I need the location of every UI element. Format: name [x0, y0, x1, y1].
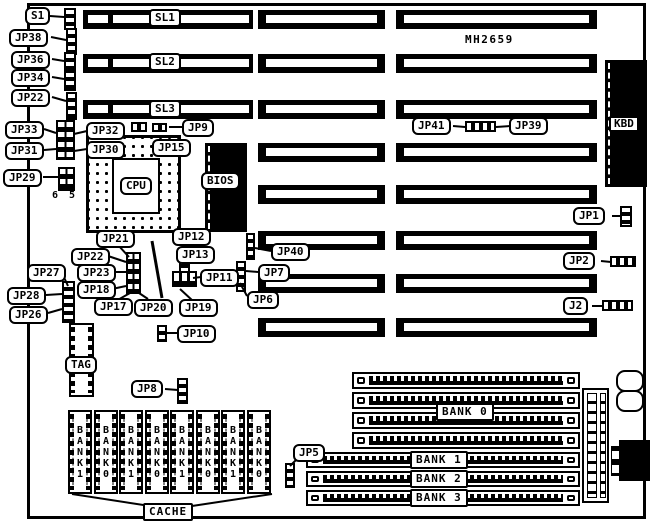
cache-chip-1: BANK1	[68, 410, 92, 494]
simm-clip	[567, 476, 575, 482]
simm-clip	[567, 437, 575, 444]
simm-clip	[357, 397, 365, 404]
jumper-label-jp9: JP9	[182, 119, 214, 137]
slot-stripe	[404, 236, 589, 244]
memory-bank0-label: BANK 0	[436, 403, 494, 421]
connector-jp2	[610, 256, 636, 267]
connector-jp28-jp26	[62, 281, 75, 323]
cache-chip-label: BANK0	[201, 414, 216, 490]
simm-clip	[357, 437, 365, 444]
isa-slot-sl2-seg-b	[258, 54, 385, 73]
slot-stripe	[404, 190, 589, 198]
jumper-label-jp2: JP2	[563, 252, 595, 270]
jumper-label-jp41: JP41	[412, 117, 451, 135]
jumper-label-jp22-top: JP22	[11, 89, 50, 107]
jumper-label-jp15: JP15	[152, 139, 191, 157]
memory-bank1-label: BANK 1	[410, 451, 468, 469]
simm-clip	[567, 417, 575, 424]
jumper-label-jp28: JP28	[7, 287, 46, 305]
simm-clip	[357, 417, 365, 424]
simm-clip	[567, 397, 575, 404]
motherboard-diagram: SL1 SL2 SL3 MH2659 KBD BIOS CPU TAG BANK…	[0, 0, 653, 528]
cache-chip-8: BANK0	[247, 410, 271, 494]
jumper-label-jp32: JP32	[86, 122, 125, 140]
simm-clip	[567, 457, 575, 463]
slot-stripe	[266, 105, 377, 113]
simm-clip	[311, 476, 319, 482]
slot-stripe	[266, 190, 377, 198]
din-pin-notch	[612, 465, 619, 473]
slot-stripe	[404, 148, 589, 156]
slot-stripe	[88, 105, 108, 113]
jumper-label-jp34: JP34	[11, 69, 50, 87]
cache-chip-label: BANK1	[175, 414, 190, 490]
connector-jp40	[246, 233, 255, 260]
connector-s1	[64, 8, 76, 30]
connector-jp38	[66, 28, 77, 55]
jumper-label-jp31: JP31	[5, 142, 44, 160]
jumper-label-jp20: JP20	[134, 299, 173, 317]
kbd-chip-label: KBD	[609, 116, 639, 132]
bios-chip-label: BIOS	[201, 172, 240, 190]
jumper-label-jp21: JP21	[96, 230, 135, 248]
connector-jp41-jp39	[465, 121, 496, 132]
jumper-label-jp13: JP13	[176, 246, 215, 264]
isa-slot-sl3-seg-b	[258, 100, 385, 119]
simm-contacts	[369, 376, 563, 385]
power-connector	[582, 388, 609, 503]
simm-contacts	[369, 436, 563, 445]
slot-stripe	[266, 15, 377, 23]
connector-jp10	[157, 325, 167, 342]
memory-bank3-label: BANK 3	[410, 489, 468, 507]
cpu-label: CPU	[120, 177, 152, 195]
isa-slot-8-seg-c	[396, 318, 597, 337]
slot-stripe	[113, 59, 249, 67]
jumper-label-jp40: JP40	[271, 243, 310, 261]
jumper-label-jp11: JP11	[200, 269, 239, 287]
keyboard-din-connector	[619, 440, 650, 481]
power-pin-column	[600, 393, 606, 498]
connector-jp34	[64, 71, 76, 91]
cache-chip-4: BANK0	[145, 410, 169, 494]
cache-chip-7: BANK1	[221, 410, 245, 494]
slot-label-sl2: SL2	[149, 53, 181, 71]
simm-socket-bank0-1	[352, 372, 580, 389]
connector-jp33-jp32-jp31-jp30	[56, 120, 75, 160]
board-part-number: MH2659	[465, 33, 514, 46]
connector-cluster-left	[126, 252, 141, 294]
jumper-label-jp19: JP19	[179, 299, 218, 317]
jumper-label-jp39: JP39	[509, 117, 548, 135]
slot-label-sl3: SL3	[149, 100, 181, 118]
jumper-label-jp27: JP27	[27, 264, 66, 282]
power-pin-column	[587, 393, 597, 498]
jumper-label-jp1: JP1	[573, 207, 605, 225]
cache-chip-label: BANK0	[252, 414, 267, 490]
mounting-outline-top	[616, 370, 644, 392]
isa-slot-7-seg-c	[396, 274, 597, 293]
isa-slot-5-seg-b	[258, 185, 385, 204]
cache-chip-5: BANK1	[170, 410, 194, 494]
jumper-label-s1: S1	[25, 7, 50, 25]
jumper-label-jp12: JP12	[172, 228, 211, 246]
simm-clip	[567, 495, 575, 501]
isa-slot-6-seg-c	[396, 231, 597, 250]
slot-stripe	[113, 15, 249, 23]
cache-chip-label: BANK1	[226, 414, 241, 490]
simm-socket-bank0-4	[352, 432, 580, 449]
slot-stripe	[88, 59, 108, 67]
simm-clip	[311, 495, 319, 501]
connector-jp36	[64, 52, 76, 72]
slot-stripe	[266, 323, 377, 331]
connector-jp9-b	[152, 123, 167, 132]
simm-clip	[357, 377, 365, 384]
isa-slot-sl1-seg-b	[258, 10, 385, 29]
tag-chip-label: TAG	[65, 356, 97, 374]
din-pin-notch	[612, 451, 619, 459]
pin-number-5: 5	[69, 190, 75, 201]
connector-jp1	[620, 206, 632, 227]
slot-stripe	[404, 15, 589, 23]
cache-chip-6: BANK0	[196, 410, 220, 494]
connector-jp22	[66, 92, 77, 120]
connector-jp29	[58, 167, 75, 191]
pin-number-6: 6	[52, 190, 58, 201]
jumper-label-jp18: JP18	[77, 281, 116, 299]
mounting-outline-bottom	[616, 390, 644, 412]
slot-stripe	[404, 279, 589, 287]
jumper-label-j2: J2	[563, 297, 588, 315]
isa-slot-5-seg-c	[396, 185, 597, 204]
jumper-label-jp6: JP6	[247, 291, 279, 309]
connector-jp5	[285, 463, 295, 488]
connector-jp9-a	[131, 122, 147, 132]
cache-chip-2: BANK0	[94, 410, 118, 494]
isa-slot-sl2-seg-c	[396, 54, 597, 73]
isa-slot-8-seg-b	[258, 318, 385, 337]
slot-label-sl1: SL1	[149, 9, 181, 27]
jumper-label-jp33: JP33	[5, 121, 44, 139]
slot-stripe	[404, 59, 589, 67]
slot-stripe	[266, 59, 377, 67]
slot-stripe	[88, 15, 108, 23]
slot-stripe	[404, 323, 589, 331]
jumper-label-jp26: JP26	[9, 306, 48, 324]
slot-stripe	[266, 148, 377, 156]
jumper-label-jp23: JP23	[77, 264, 116, 282]
connector-jp8	[177, 378, 188, 404]
cache-chip-label: BANK1	[124, 414, 139, 490]
slot-stripe	[404, 105, 589, 113]
cache-group-label: CACHE	[143, 503, 193, 521]
jumper-label-jp10: JP10	[177, 325, 216, 343]
jumper-label-jp5: JP5	[293, 444, 325, 462]
jumper-label-jp30: JP30	[86, 141, 125, 159]
jumper-label-jp29: JP29	[3, 169, 42, 187]
memory-bank2-label: BANK 2	[410, 470, 468, 488]
jumper-label-jp7: JP7	[258, 264, 290, 282]
connector-j2	[602, 300, 633, 311]
cache-chip-label: BANK0	[99, 414, 114, 490]
isa-slot-4-seg-b	[258, 143, 385, 162]
cache-chip-label: BANK1	[73, 414, 88, 490]
simm-clip	[567, 377, 575, 384]
cache-chip-label: BANK0	[150, 414, 165, 490]
isa-slot-sl1-seg-c	[396, 10, 597, 29]
isa-slot-4-seg-c	[396, 143, 597, 162]
jumper-label-jp17: JP17	[94, 298, 133, 316]
connector-jp11	[172, 271, 197, 287]
jumper-label-jp8: JP8	[131, 380, 163, 398]
cache-chip-3: BANK1	[119, 410, 143, 494]
slot-stripe	[113, 105, 249, 113]
jumper-label-jp38: JP38	[9, 29, 48, 47]
jumper-label-jp36: JP36	[11, 51, 50, 69]
